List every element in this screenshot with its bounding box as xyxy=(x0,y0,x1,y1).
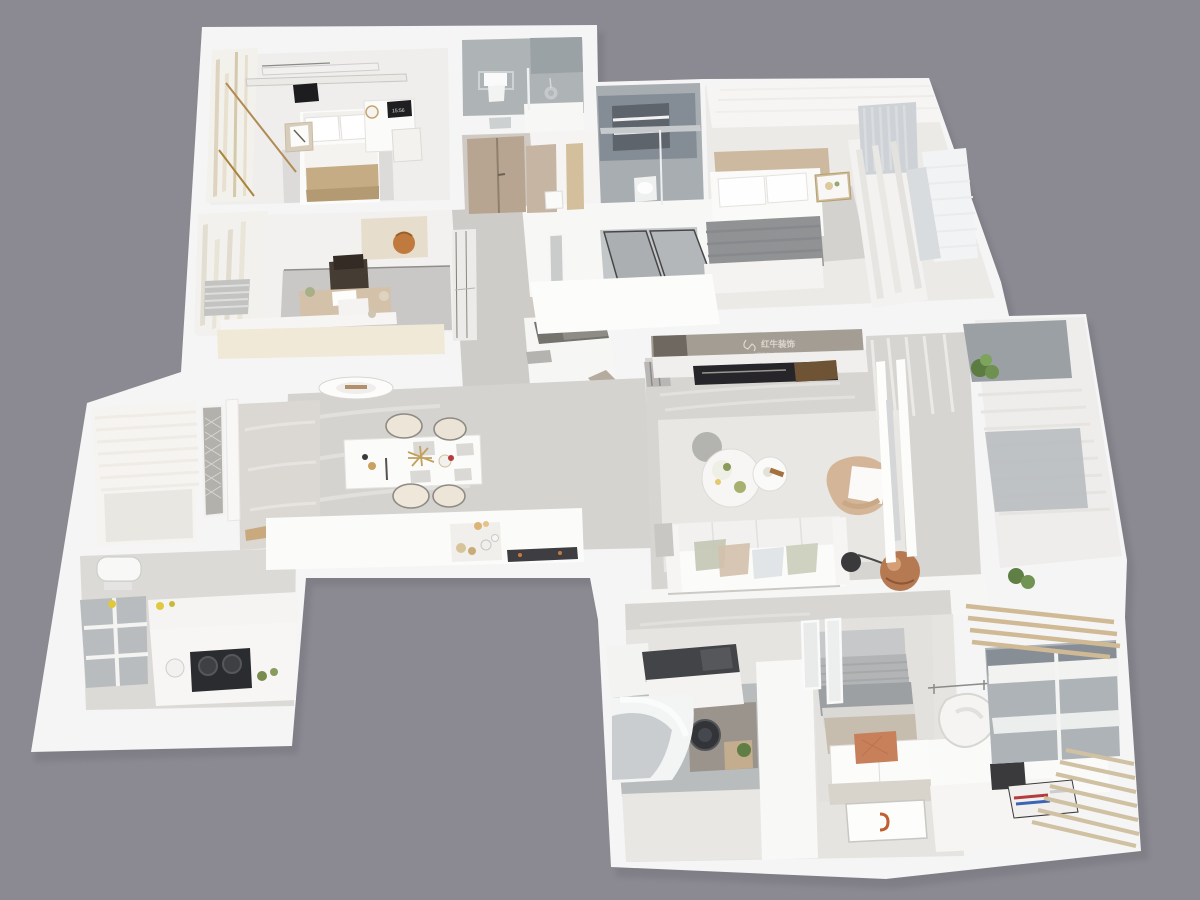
svg-text:红牛装饰: 红牛装饰 xyxy=(761,339,796,349)
svg-text:15:56: 15:56 xyxy=(392,108,405,115)
